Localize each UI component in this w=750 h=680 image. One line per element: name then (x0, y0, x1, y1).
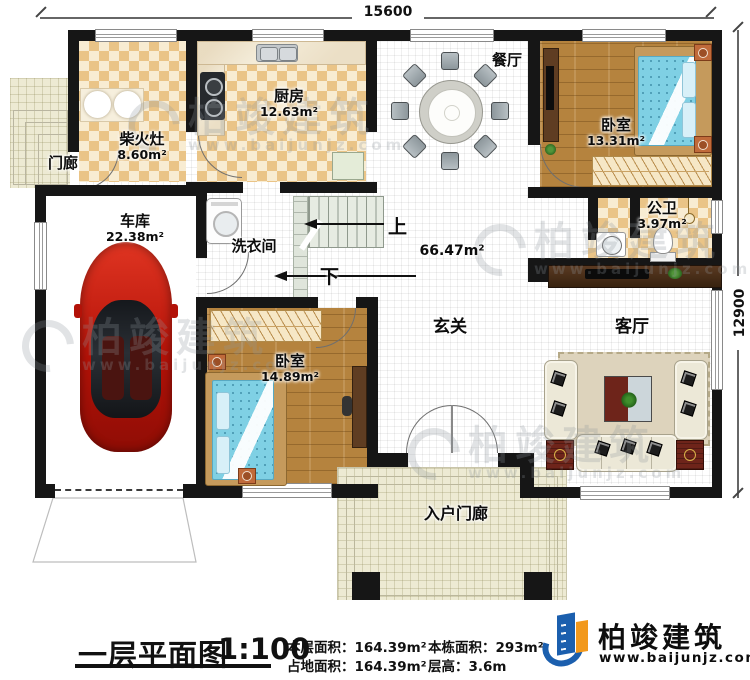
bedroom-top-tv (546, 66, 554, 110)
brand-logo-icon (545, 612, 593, 670)
room-area: 22.38m² (106, 230, 164, 244)
brand-logo-building-blue (557, 612, 575, 655)
wall-foyer-connector (520, 453, 534, 498)
room-area: 8.60m² (117, 148, 166, 162)
room-label-entry-porch: 入户门廊 (424, 505, 488, 523)
room-name: 玄关 (433, 317, 467, 337)
floor-plan-screen: 15600 12900 上 下 (0, 0, 750, 680)
coffee-table-plant (621, 392, 637, 408)
dimension-tick (35, 6, 46, 17)
stat-label: 本层面积： (287, 640, 355, 656)
stat-value: 164.39m² (355, 640, 427, 656)
wall-woodstove-kitchen (186, 30, 197, 132)
stat-value: 3.6m (469, 659, 507, 675)
stat-label: 层高： (428, 659, 469, 675)
wall-foyer-front-left (378, 453, 408, 467)
stat-building-area: 本栋面积：293m² (428, 636, 544, 656)
room-label-wood-stove: 柴火灶 8.60m² (117, 131, 166, 163)
wall-bedroombottom-top-left (207, 297, 318, 308)
stat-floor-height: 层高：3.6m (428, 655, 506, 675)
stat-value: 293m² (496, 640, 544, 656)
sink-basin (260, 47, 278, 61)
washer-controls (211, 202, 238, 206)
plant-on-cabinet (668, 268, 682, 279)
wall-kitchen-dining (366, 30, 377, 132)
wall-bedroomtop-left (528, 30, 540, 145)
wall-tv-left-chunk (528, 258, 550, 282)
driveway (30, 484, 200, 568)
room-name: 客厅 (615, 317, 649, 337)
room-name: 门廊 (48, 154, 78, 172)
room-label-kitchen: 厨房 12.63m² (260, 88, 318, 120)
porch-column (524, 572, 552, 600)
side-table (676, 440, 704, 470)
room-label-porch: 门廊 (48, 155, 78, 172)
room-area: 12.63m² (260, 105, 318, 119)
window (582, 29, 666, 42)
room-label-bathroom: 公卫 3.97m² (637, 200, 686, 232)
stat-label: 占地面积： (287, 659, 355, 675)
bed-pillow (682, 62, 696, 98)
stat-floor-area: 本层面积：164.39m² (287, 636, 427, 656)
dining-chair (441, 52, 459, 70)
bedroom-bottom-chair (342, 396, 352, 416)
bed-pillow (682, 102, 696, 138)
wall-left-upper (68, 30, 79, 152)
dining-table (419, 80, 483, 144)
wall-tv (550, 258, 722, 265)
kitchen-sink (256, 44, 298, 62)
dining-chair (491, 102, 509, 120)
nightstand (694, 44, 712, 61)
window (410, 29, 494, 42)
room-area: 14.89m² (261, 370, 319, 384)
stat-label: 本栋面积： (428, 640, 496, 656)
room-name: 餐厅 (492, 51, 522, 69)
right-dimension-line (737, 30, 739, 498)
garage-door-dashed-line (55, 489, 183, 491)
wall-bottom-living-left (534, 487, 580, 498)
side-table (546, 440, 574, 470)
porch-column (352, 572, 380, 600)
wood-stove-pot (84, 91, 111, 118)
room-name: 卧室 (275, 352, 305, 370)
kitchen-cabinet (332, 152, 364, 180)
bed-pillow (216, 436, 230, 474)
wall-bottom (332, 484, 378, 498)
stove-burner (205, 78, 223, 96)
coffee-table (604, 376, 652, 422)
stairs-up-arrowhead (304, 219, 317, 229)
window (580, 486, 670, 500)
wall-bottom (183, 484, 242, 498)
dining-table-center (444, 105, 460, 121)
room-label-dining: 餐厅 (492, 52, 522, 69)
room-label-bedroom-top: 卧室 13.31m² (587, 117, 645, 149)
dining-chair (391, 102, 409, 120)
room-name: 公卫 (647, 199, 677, 217)
wall-garage-top (35, 185, 207, 196)
stairs-up-arrow-line (316, 223, 384, 225)
room-area: 66.47m² (419, 243, 484, 259)
stairs-down-arrowhead (274, 271, 287, 281)
right-dimension-label: 12900 (732, 276, 748, 350)
room-name: 洗衣间 (231, 237, 276, 255)
stairs-down-arrow-line (284, 275, 416, 277)
nightstand (238, 468, 256, 484)
stairs-down-label: 下 (320, 262, 339, 289)
room-label-foyer: 玄关 (433, 318, 467, 338)
sink-basin (602, 236, 622, 255)
washer-drum (213, 211, 239, 237)
dimension-tick (705, 6, 716, 17)
wood-stove-pot (114, 91, 141, 118)
hall-area-label: 66.47m² (419, 243, 484, 259)
room-name: 车库 (120, 212, 150, 230)
bathroom-light-cord (688, 198, 689, 214)
room-name: 卧室 (601, 116, 631, 134)
car (80, 242, 172, 452)
brand-logo-building-orange (576, 620, 588, 653)
car-interior (102, 336, 124, 400)
wall-kitchen-bottom-right (280, 182, 377, 193)
room-area: 3.97m² (637, 217, 686, 231)
stove (200, 72, 225, 120)
wall-kitchen-bottom-left (186, 182, 243, 193)
bathroom-sink (596, 232, 626, 257)
wall-bottom-garage-corner (35, 484, 55, 498)
wall-bedroomtop-bottom (528, 187, 722, 198)
footer: 一层平面图 1:100 本层面积：164.39m² 占地面积：164.39m² … (0, 600, 750, 680)
room-label-living: 客厅 (615, 318, 649, 338)
bedroom-top-wardrobe (592, 156, 712, 186)
entrance-door-center-line (451, 405, 453, 453)
bedroom-bottom-wardrobe (210, 310, 322, 342)
title-underline (75, 664, 271, 668)
nightstand (694, 136, 712, 153)
room-label-laundry: 洗衣间 (231, 238, 276, 255)
wall-bottom-living-right (670, 487, 722, 498)
window (711, 200, 723, 234)
car-mirror (74, 304, 82, 318)
dining-chair (441, 152, 459, 170)
window (711, 290, 723, 390)
brand-url: www.baijunjz.com (599, 650, 750, 666)
tv (585, 269, 649, 279)
room-name: 厨房 (274, 87, 304, 105)
car-mirror (170, 304, 178, 318)
bedroom-top-plant (545, 144, 556, 155)
room-name: 入户门廊 (424, 504, 488, 523)
stove-burner (205, 99, 223, 117)
room-name: 柴火灶 (119, 130, 164, 148)
stat-value: 164.39m² (355, 659, 427, 675)
stat-land-area: 占地面积：164.39m² (287, 655, 427, 675)
entry-porch-inner-border (354, 484, 550, 596)
car-interior (130, 336, 152, 400)
sink-basin (279, 47, 297, 61)
wall-bedroombottom-right (367, 297, 378, 467)
nightstand (208, 354, 226, 370)
room-label-garage: 车库 22.38m² (106, 213, 164, 245)
top-dimension-label: 15600 (352, 4, 424, 20)
window (34, 222, 47, 290)
stairs-up-label: 上 (388, 212, 407, 239)
bed-pillow (216, 392, 230, 430)
window (95, 29, 177, 42)
room-label-bedroom-bottom: 卧室 14.89m² (261, 353, 319, 385)
room-area: 13.31m² (587, 134, 645, 148)
bedroom-bottom-desk (352, 366, 367, 448)
